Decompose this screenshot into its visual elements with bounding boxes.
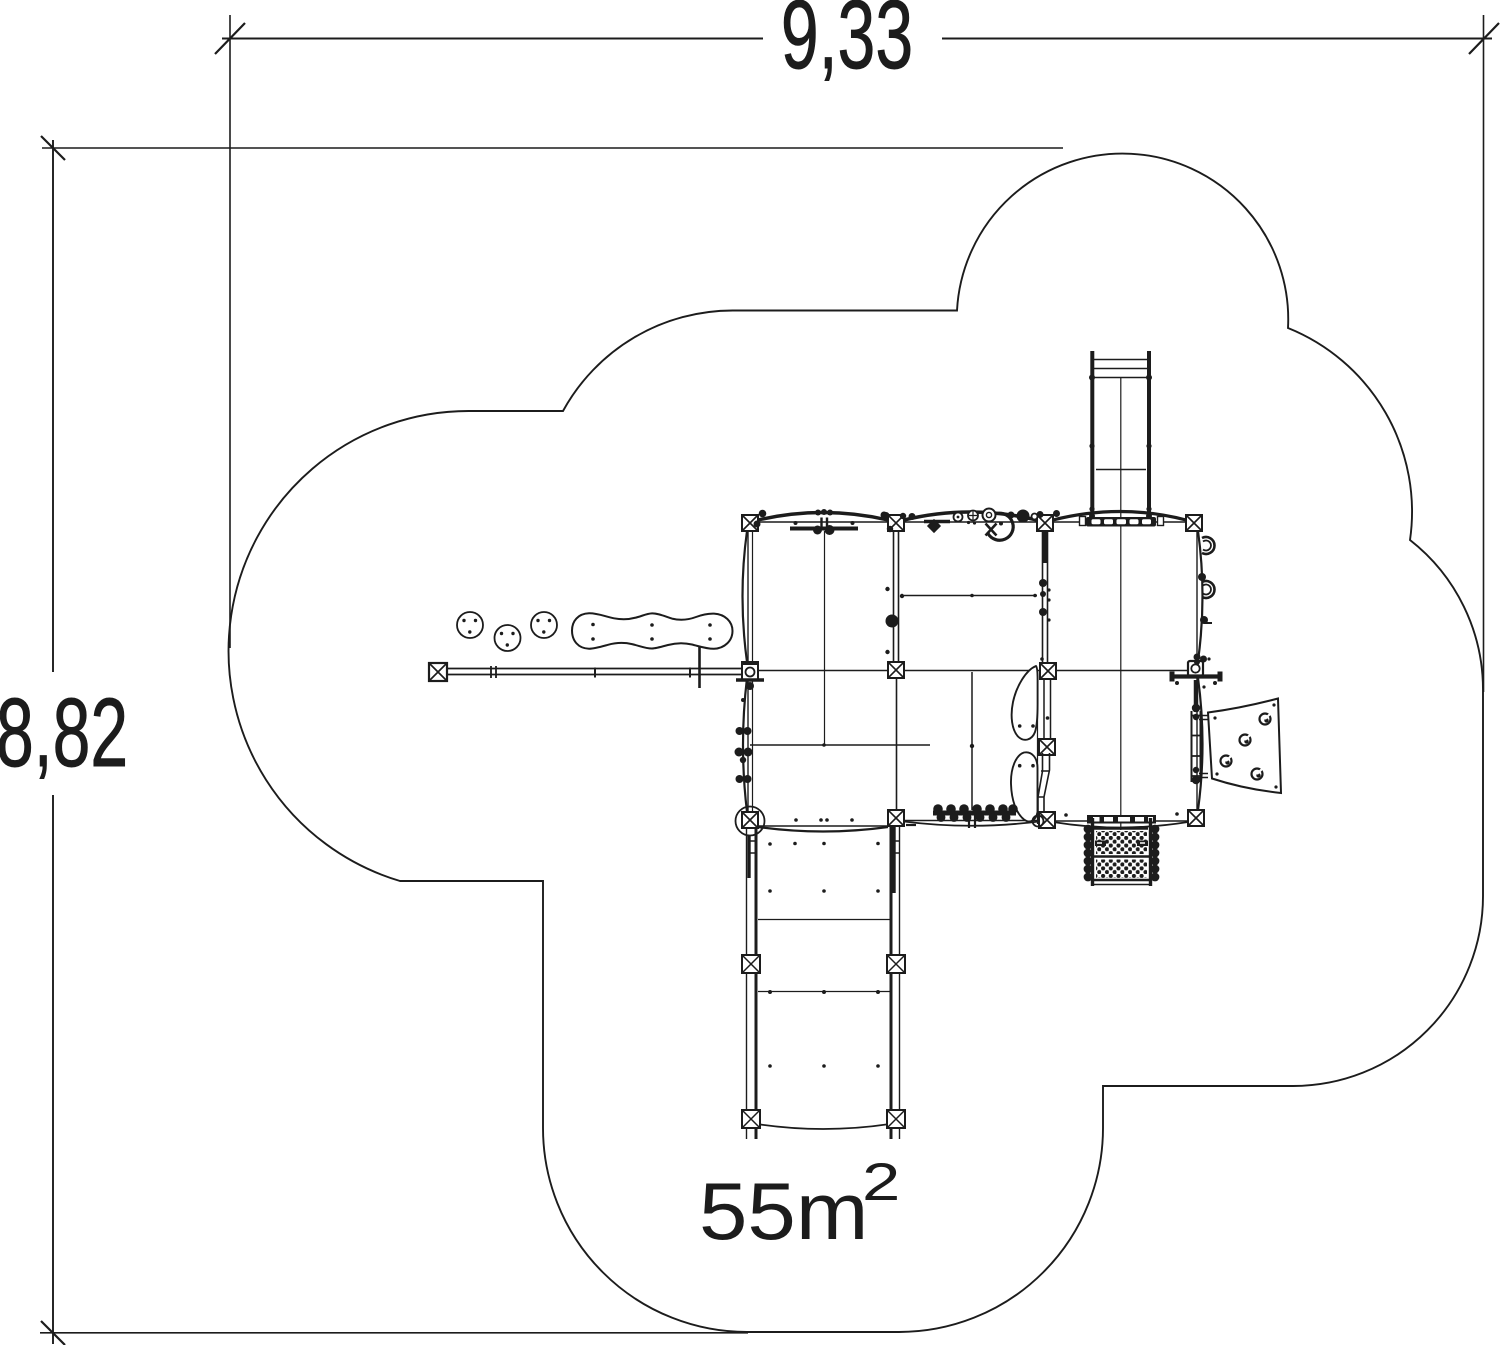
svg-text:55m: 55m	[699, 1166, 868, 1257]
svg-text:2: 2	[862, 1153, 900, 1212]
svg-text:8,82: 8,82	[0, 678, 128, 787]
svg-text:9,33: 9,33	[781, 0, 913, 89]
